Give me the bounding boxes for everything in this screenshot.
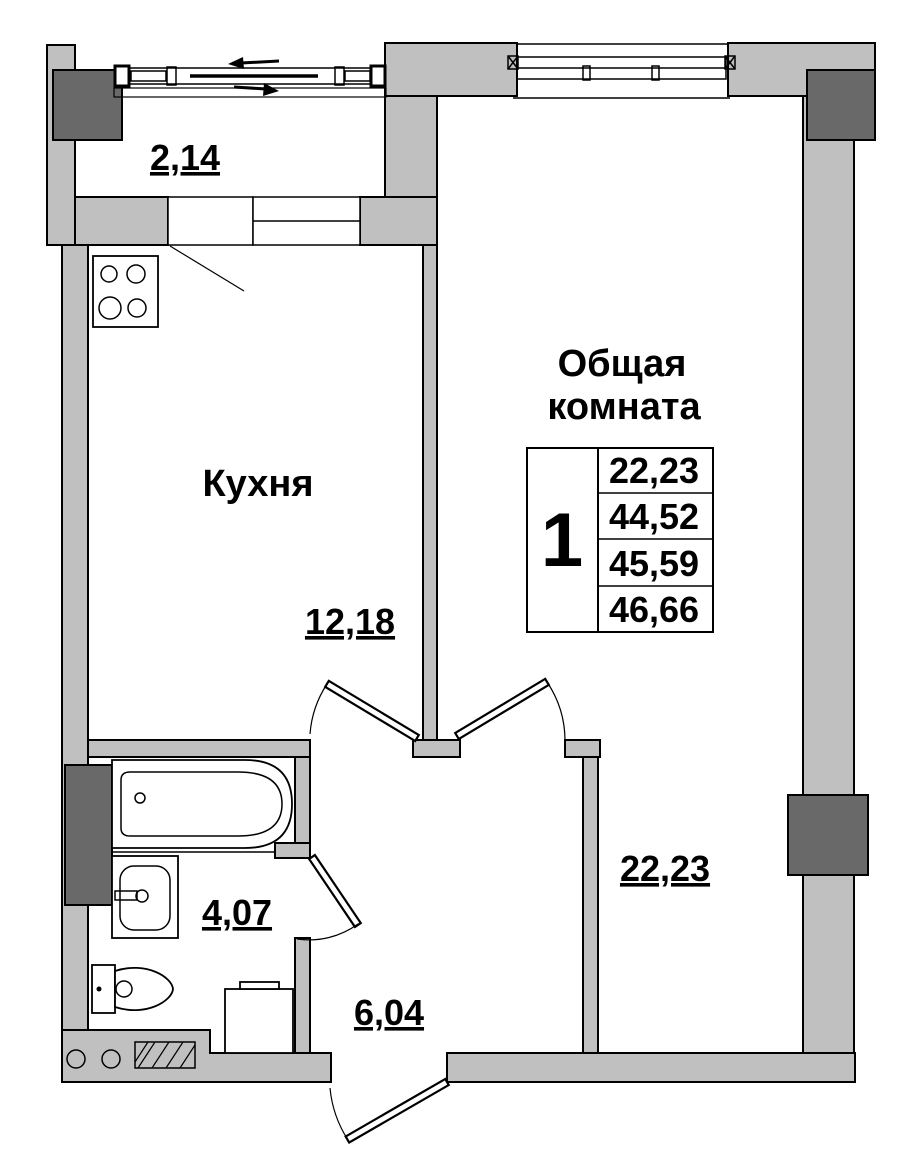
bathtub-outer: [112, 760, 292, 848]
wall-kitchen-living: [423, 245, 437, 740]
wall-bathroom-right-lower: [295, 938, 310, 1053]
door-leaf: [309, 855, 361, 927]
toilet-flush-button: [97, 987, 102, 992]
wall-hall-living-top: [565, 740, 600, 757]
table-area-value: 46,66: [609, 589, 699, 630]
toilet-bowl: [115, 968, 173, 1010]
slide-arrow-left-icon: [228, 57, 244, 69]
living-room-window: [508, 44, 735, 98]
balcony-kitchen-opening: [168, 197, 360, 291]
wall-balcony-bottom-right: [360, 197, 437, 245]
wall-hall-center-stub: [413, 740, 460, 757]
stove: [93, 256, 158, 327]
window-post-left: [167, 67, 176, 85]
floorplan-page: 2,14 Кухня 12,18 Общая комната 22,23 4,0…: [0, 0, 921, 1176]
balcony-area-label: 2,14: [150, 137, 220, 178]
table-area-value: 45,59: [609, 543, 699, 584]
wall-kitchen-bottom: [88, 740, 310, 757]
balcony-sliding-window: [114, 57, 386, 97]
wall-hall-living: [583, 757, 598, 1053]
washing-machine-body: [225, 989, 293, 1053]
bathtub: [112, 760, 292, 852]
slide-arrow-right-icon: [263, 83, 279, 96]
window-pane-right: [345, 71, 370, 81]
wall-left: [62, 245, 88, 1030]
bathroom-area-label: 4,07: [202, 892, 272, 933]
column-right-middle: [788, 795, 868, 875]
door-swing-arc: [330, 1088, 348, 1140]
column-top-right: [807, 70, 875, 140]
slide-arrow-left-shaft: [241, 61, 279, 63]
floorplan-canvas: 2,14 Кухня 12,18 Общая комната 22,23 4,0…: [0, 0, 921, 1176]
wall-balcony-bottom-left: [75, 197, 168, 245]
wall-balcony-living-separator: [385, 96, 437, 197]
balcony-door-swing: [170, 246, 244, 291]
hall-area-label: 6,04: [354, 992, 424, 1033]
kitchen-area-label: 12,18: [305, 601, 395, 642]
window-end-cap-right: [371, 66, 385, 86]
wall-right: [803, 96, 854, 1082]
wall-bathtub-stub: [275, 843, 310, 858]
wall-bottom-right: [447, 1053, 855, 1082]
entrance-door: [330, 1079, 449, 1143]
window-pane-left: [131, 71, 166, 81]
balcony-door-block: [168, 197, 253, 245]
column-top-left: [53, 70, 122, 140]
kitchen-door: [310, 681, 419, 741]
living-area-label: 22,23: [620, 848, 710, 889]
sink: [112, 856, 178, 938]
door-leaf: [455, 679, 549, 739]
apartment-info-table: 1 22,23 44,52 45,59 46,66: [527, 448, 713, 632]
wall-bathroom-right-upper: [295, 757, 310, 856]
washing-machine: [225, 982, 293, 1053]
flat-number: 1: [541, 498, 583, 583]
toilet: [92, 965, 173, 1013]
column-bathroom-left: [65, 765, 112, 905]
living-room-door: [455, 679, 565, 740]
wall-living-top-left: [385, 43, 517, 96]
toilet-tank: [92, 965, 115, 1013]
door-swing-arc: [310, 684, 327, 734]
bathroom-door: [297, 855, 361, 940]
window-end-cap-left: [115, 66, 129, 86]
window-post-right: [335, 67, 344, 85]
vent-shaft: [135, 1042, 195, 1068]
door-leaf: [346, 1079, 449, 1143]
door-swing-arc: [547, 682, 565, 740]
table-area-value: 22,23: [609, 450, 699, 491]
washing-machine-panel: [240, 982, 279, 989]
vent-shaft-box: [135, 1042, 195, 1068]
sink-body: [112, 856, 178, 938]
living-name-line2: комната: [547, 386, 701, 428]
door-leaf: [325, 681, 419, 741]
living-name-line1: Общая: [558, 343, 687, 385]
kitchen-name-label: Кухня: [202, 463, 313, 505]
table-area-value: 44,52: [609, 496, 699, 537]
